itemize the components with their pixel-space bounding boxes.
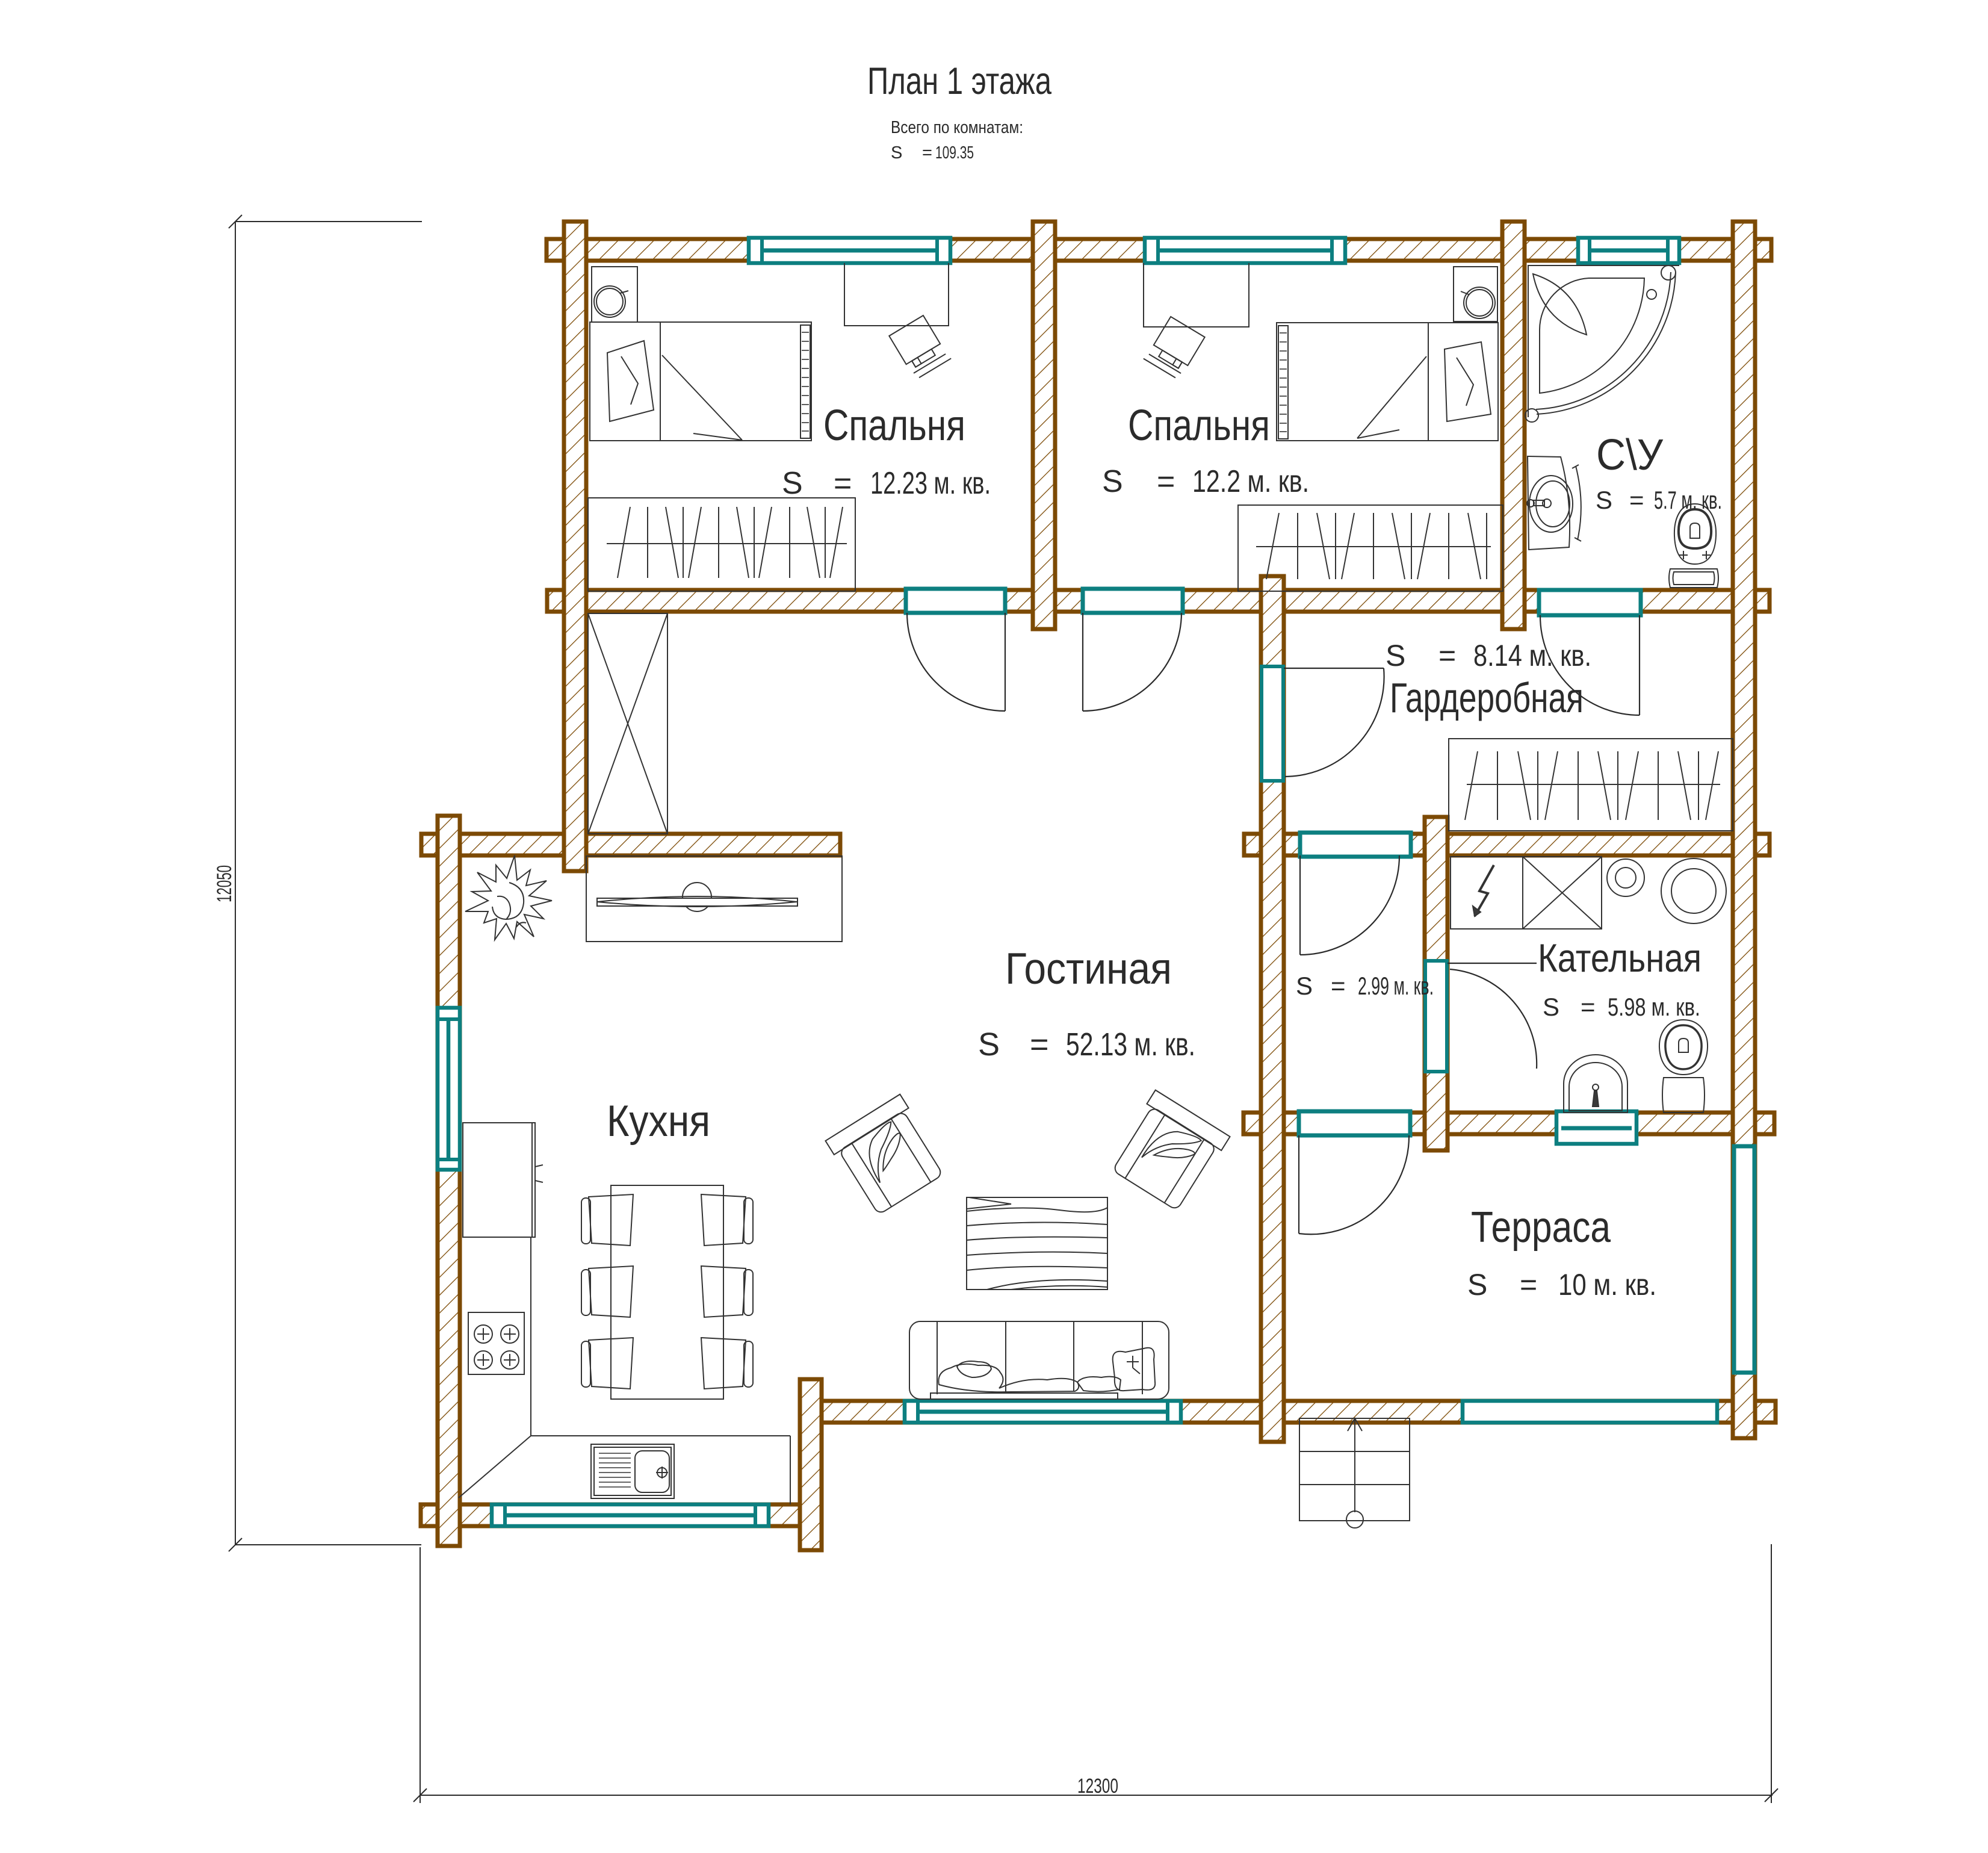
svg-text:Спальня: Спальня xyxy=(823,402,965,450)
svg-text:12050: 12050 xyxy=(213,865,236,902)
svg-text:Кательная: Кательная xyxy=(1538,936,1702,980)
svg-text:Спальня: Спальня xyxy=(1128,402,1270,450)
svg-text:План 1 этажа: План 1 этажа xyxy=(867,60,1052,102)
svg-text:Кухня: Кухня xyxy=(607,1097,710,1146)
svg-text:Гардеробная: Гардеробная xyxy=(1390,674,1584,721)
svg-text:12300: 12300 xyxy=(1077,1775,1118,1798)
svg-text:Всего по комнатам:: Всего по комнатам: xyxy=(891,118,1023,137)
svg-text:Терраса: Терраса xyxy=(1471,1203,1611,1252)
svg-text:С\У: С\У xyxy=(1596,431,1664,479)
svg-text:Гостиная: Гостиная xyxy=(1005,945,1172,993)
